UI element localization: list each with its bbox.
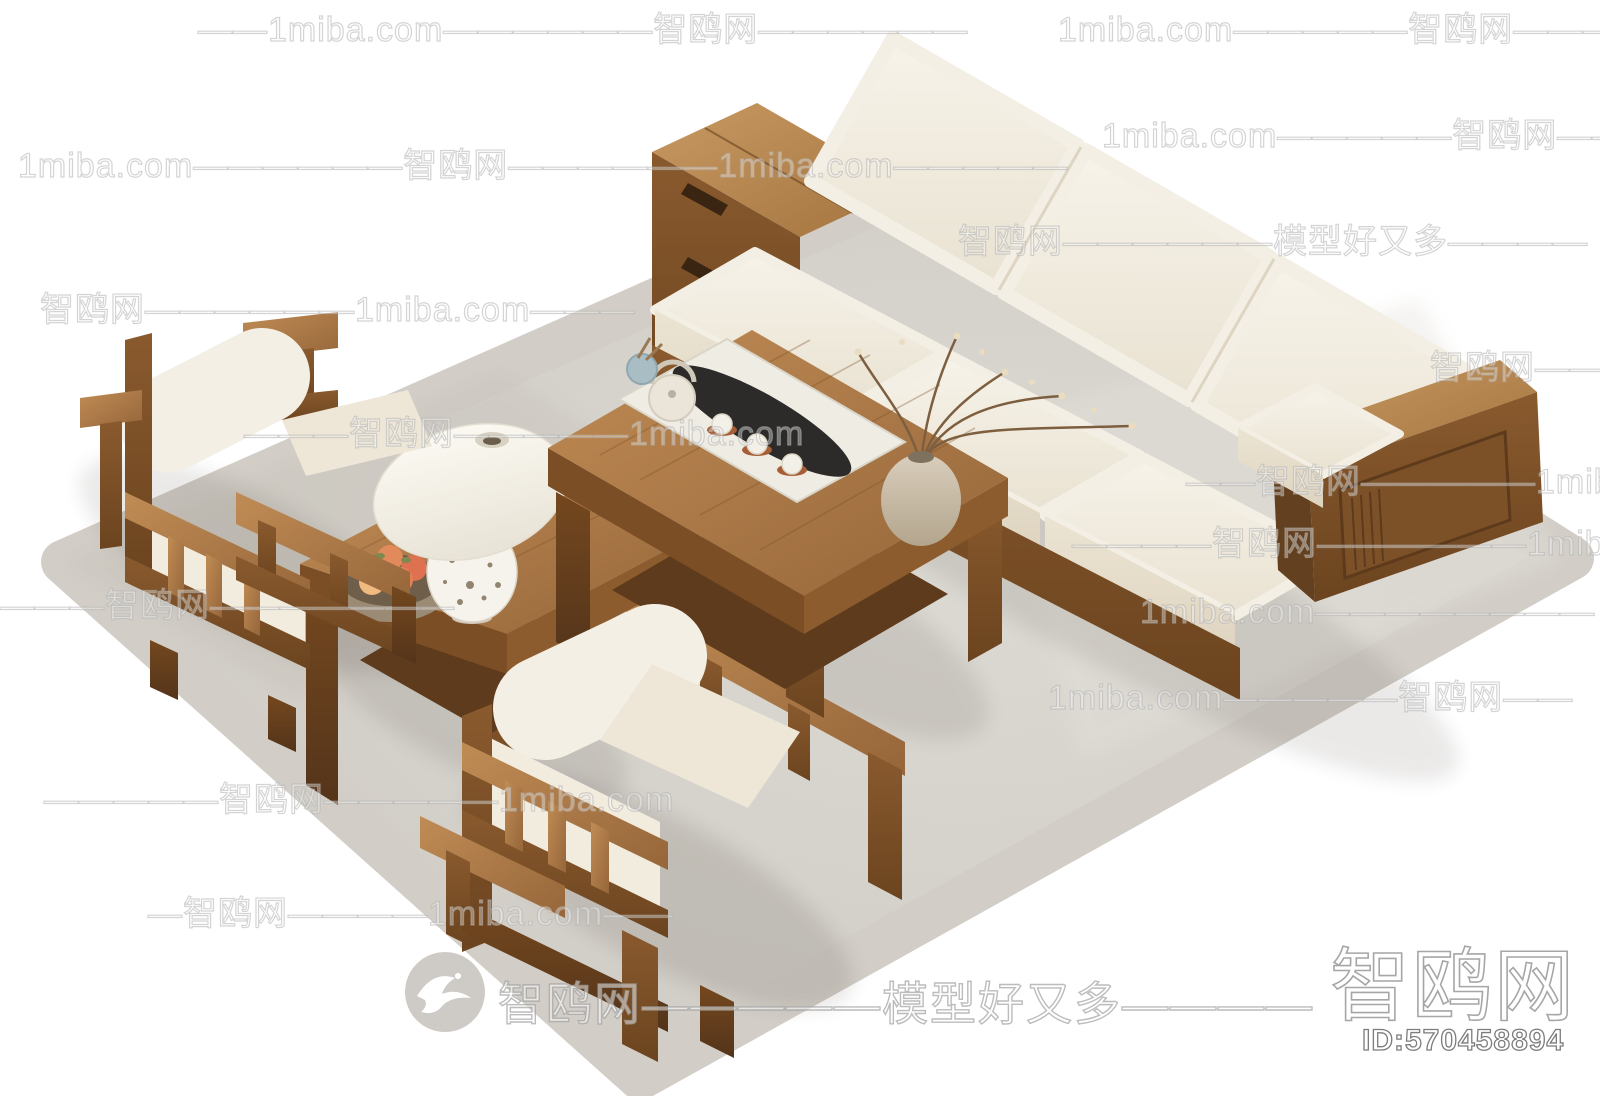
corner-brand-watermark: 智鸥网 [1330,922,1576,1038]
product-image: ——1miba.com——————智鸥网——————1miba.com—————… [0,0,1600,1096]
seagull-logo [403,950,487,1034]
ceramic-vase [881,454,961,546]
armchair-top-left-back-cushion [168,376,262,424]
model-id-label: ID:570458894 [1362,1024,1564,1058]
bottom-banner-text: 智鸥网—————模型好又多———— [498,968,1314,1034]
utensil-cup [627,354,657,384]
